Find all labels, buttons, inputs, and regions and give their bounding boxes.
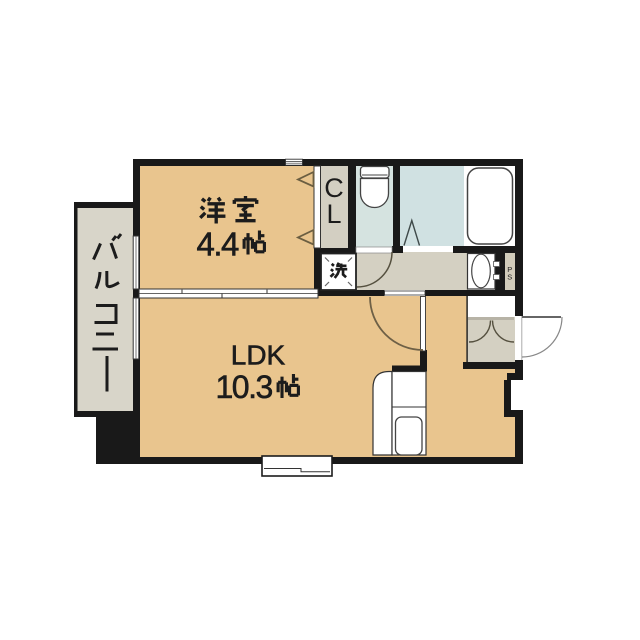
svg-text:L: L [326, 199, 341, 229]
svg-text:S: S [507, 273, 512, 282]
svg-text:10.3: 10.3 [216, 369, 273, 405]
svg-text:4.4: 4.4 [197, 226, 240, 263]
svg-text:LDK: LDK [231, 340, 286, 371]
